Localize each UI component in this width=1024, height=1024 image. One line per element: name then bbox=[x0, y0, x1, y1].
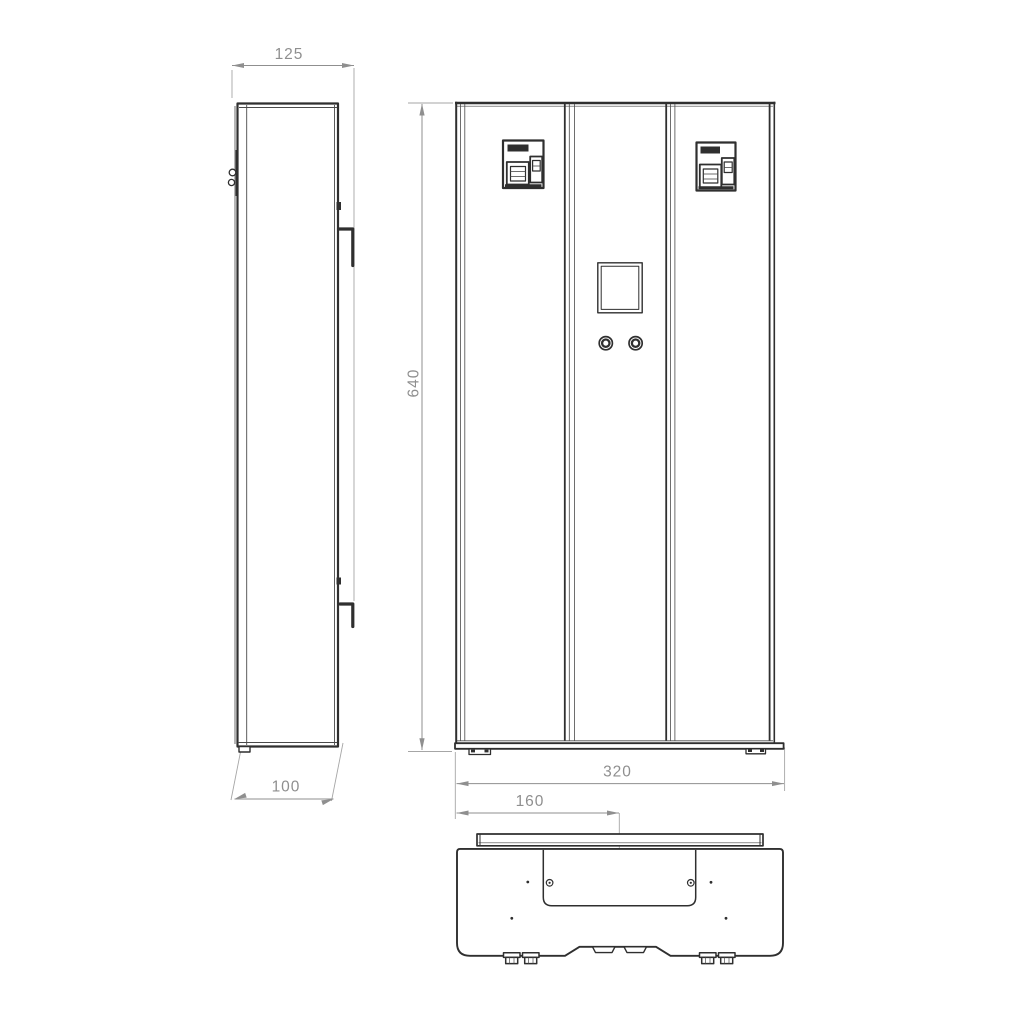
arrow-left-icon bbox=[232, 63, 244, 68]
dimension-value: 160 bbox=[516, 793, 545, 810]
foot-mark bbox=[471, 750, 475, 753]
breaker-box-right bbox=[697, 143, 736, 191]
mounting-plate bbox=[477, 834, 763, 846]
dimension-value: 100 bbox=[272, 779, 301, 796]
breaker-label bbox=[508, 145, 529, 152]
arrow-left-icon bbox=[234, 793, 247, 801]
hole-dot bbox=[710, 881, 713, 884]
dimension-depth-body: 100 bbox=[234, 779, 335, 806]
dimension-width: 320 bbox=[457, 764, 785, 787]
arrow-down-icon bbox=[419, 738, 424, 750]
latch-knob bbox=[229, 169, 236, 176]
ext-line-oblique bbox=[231, 752, 241, 800]
side-foot bbox=[239, 747, 250, 753]
dimension-value: 320 bbox=[603, 764, 632, 781]
front-view bbox=[455, 102, 784, 755]
cable-gland bbox=[700, 953, 717, 964]
side-body-outline bbox=[238, 104, 339, 747]
bracket-lug bbox=[337, 578, 342, 585]
latch-knob bbox=[228, 179, 234, 185]
technical-drawing-page: 125 100 640 320 160 bbox=[0, 0, 1024, 1024]
hole-dot bbox=[526, 881, 529, 884]
gland-body bbox=[721, 957, 733, 963]
panel-groove-right bbox=[666, 104, 675, 741]
bracket-hook bbox=[339, 229, 353, 266]
dimension-height: 640 bbox=[406, 104, 425, 751]
screw-center bbox=[690, 882, 692, 884]
hole-dot bbox=[510, 917, 513, 920]
front-base-band bbox=[455, 743, 784, 749]
display-screen-inner bbox=[601, 266, 639, 309]
dimension-value: 640 bbox=[406, 369, 423, 398]
arrow-right-icon bbox=[342, 63, 354, 68]
front-foot-right bbox=[746, 749, 766, 754]
arrow-left-icon bbox=[457, 781, 469, 786]
foot-mark bbox=[748, 749, 752, 752]
knob-inner-ring bbox=[602, 340, 609, 347]
gland-body bbox=[702, 957, 714, 963]
arrow-left-icon bbox=[457, 811, 469, 816]
breaker-box-left bbox=[503, 141, 544, 189]
screw-center bbox=[549, 882, 551, 884]
dimension-value: 125 bbox=[275, 46, 304, 63]
breaker-label bbox=[701, 147, 721, 154]
cable-gland bbox=[719, 953, 736, 964]
hole-dot bbox=[725, 917, 728, 920]
cable-gland bbox=[523, 953, 540, 964]
bracket-hook bbox=[340, 604, 353, 627]
foot-mark bbox=[485, 750, 489, 753]
boiler-technical-drawing: 125 100 640 320 160 bbox=[0, 0, 1024, 1024]
gland-body bbox=[525, 957, 537, 963]
display-screen bbox=[598, 263, 642, 313]
cable-gland bbox=[504, 953, 521, 964]
bottom-tab bbox=[593, 947, 616, 953]
gland-body bbox=[506, 957, 518, 963]
bottom-body-outline bbox=[457, 849, 783, 956]
ext-line-oblique bbox=[332, 743, 344, 801]
arrow-right-icon bbox=[607, 811, 619, 816]
bracket-lug bbox=[337, 202, 342, 210]
control-knob-left bbox=[599, 337, 612, 350]
foot-mark bbox=[760, 749, 764, 752]
bottom-tab bbox=[624, 947, 647, 953]
dimension-depth-overall: 125 bbox=[232, 46, 354, 68]
knob-inner-ring bbox=[632, 340, 639, 347]
front-foot-left bbox=[469, 749, 491, 755]
arrow-up-icon bbox=[419, 104, 424, 116]
panel-groove-left bbox=[565, 104, 575, 741]
bottom-view bbox=[457, 834, 783, 964]
control-knob-right bbox=[629, 337, 642, 350]
arrow-right-icon bbox=[772, 781, 784, 786]
side-view bbox=[228, 104, 352, 753]
dimension-half-width: 160 bbox=[457, 793, 620, 816]
